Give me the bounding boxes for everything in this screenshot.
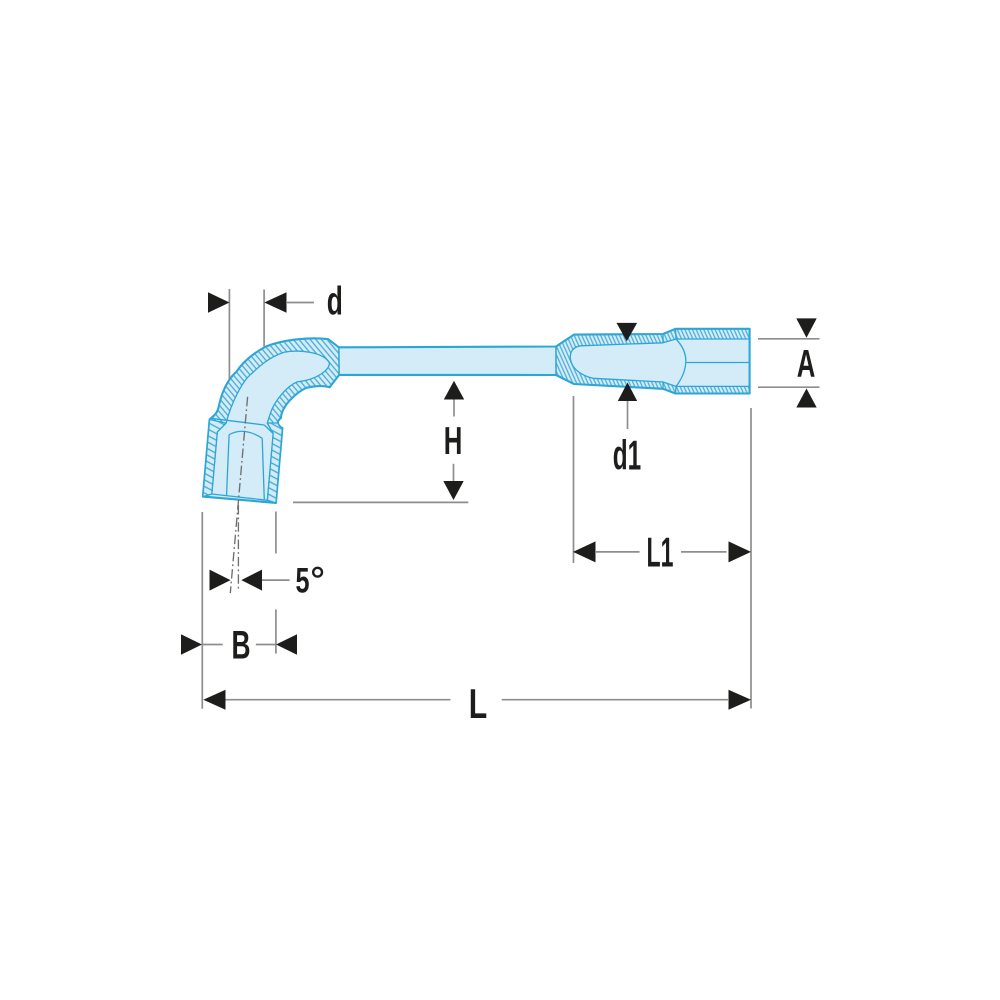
svg-text:A: A	[797, 343, 816, 387]
svg-text:d1: d1	[613, 433, 641, 479]
svg-text:L: L	[469, 680, 487, 727]
svg-text:H: H	[444, 420, 463, 464]
svg-text:5: 5	[295, 562, 309, 601]
svg-text:L1: L1	[647, 529, 674, 576]
svg-text:B: B	[231, 623, 250, 668]
svg-text:d: d	[327, 279, 343, 324]
